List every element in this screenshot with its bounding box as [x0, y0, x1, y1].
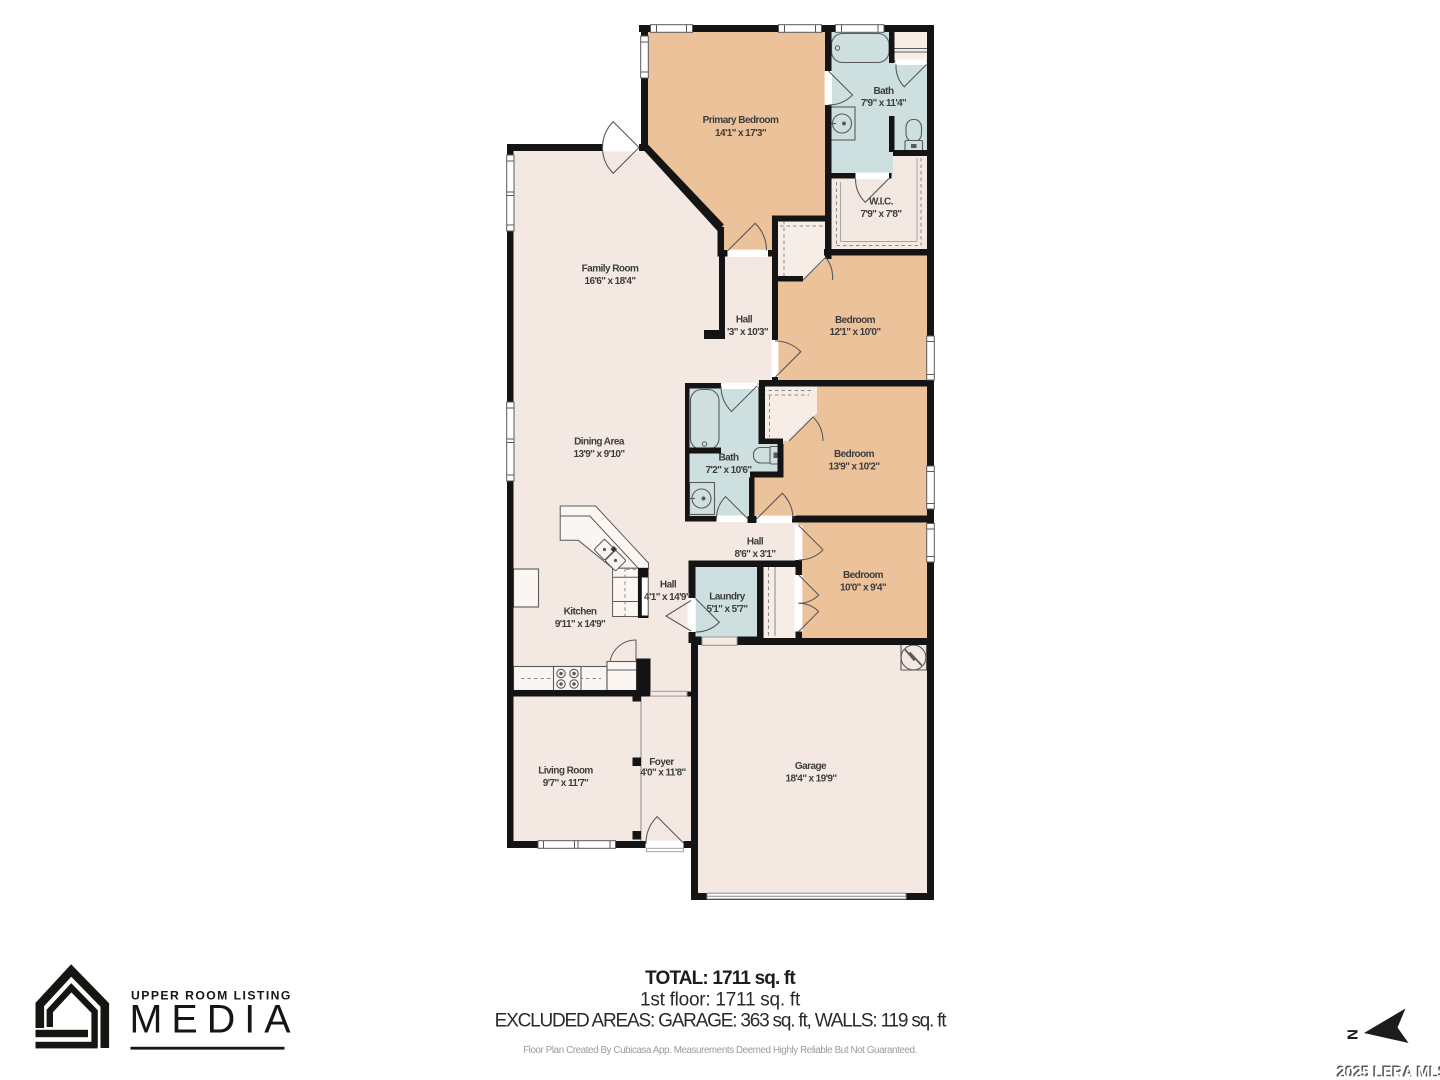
svg-text:'3" x 10'3": '3" x 10'3": [727, 327, 769, 338]
svg-text:7'2" x 10'6": 7'2" x 10'6": [706, 465, 753, 476]
svg-text:Hall: Hall: [747, 537, 764, 548]
svg-text:EXCLUDED AREAS: GARAGE: 363 sq: EXCLUDED AREAS: GARAGE: 363 sq. ft, WALL…: [495, 1011, 948, 1032]
svg-text:Foyer: Foyer: [649, 757, 674, 768]
svg-text:12'1" x 10'0": 12'1" x 10'0": [830, 327, 882, 338]
svg-text:4'0" x 11'8": 4'0" x 11'8": [640, 768, 686, 779]
svg-text:10'0" x 9'4": 10'0" x 9'4": [840, 583, 887, 594]
svg-text:9'11" x 14'9": 9'11" x 14'9": [555, 619, 606, 630]
svg-text:16'6" x 18'4": 16'6" x 18'4": [585, 276, 637, 287]
svg-text:7'9" x 11'4": 7'9" x 11'4": [861, 98, 907, 109]
svg-text:Family Room: Family Room: [582, 264, 639, 275]
svg-text:Hall: Hall: [660, 580, 677, 591]
svg-text:14'1" x 17'3": 14'1" x 17'3": [715, 128, 767, 139]
svg-text:7'9" x 7'8": 7'9" x 7'8": [860, 209, 902, 220]
svg-text:9'7" x 11'7": 9'7" x 11'7": [543, 778, 589, 789]
svg-text:Bedroom: Bedroom: [834, 449, 875, 460]
svg-text:13'9" x 9'10": 13'9" x 9'10": [574, 449, 626, 460]
svg-text:Hall: Hall: [736, 315, 753, 326]
svg-text:Laundry: Laundry: [709, 592, 746, 603]
svg-text:Bath: Bath: [718, 453, 738, 464]
svg-text:Dining Area: Dining Area: [574, 437, 625, 448]
svg-text:18'4" x 19'9": 18'4" x 19'9": [786, 774, 838, 785]
svg-text:2025 LERA MLS: 2025 LERA MLS: [1338, 1065, 1440, 1080]
svg-text:MEDIA: MEDIA: [130, 998, 300, 1042]
svg-text:8'6" x 3'1": 8'6" x 3'1": [734, 549, 776, 560]
svg-text:Living Room: Living Room: [538, 766, 593, 777]
svg-text:N: N: [1344, 1029, 1361, 1040]
svg-text:5'1" x 5'7": 5'1" x 5'7": [706, 604, 748, 615]
svg-text:1st floor: 1711 sq. ft: 1st floor: 1711 sq. ft: [640, 990, 801, 1011]
svg-text:Primary Bedroom: Primary Bedroom: [703, 115, 779, 126]
svg-text:13'9" x 10'2": 13'9" x 10'2": [829, 462, 881, 473]
svg-text:Floor Plan Created By Cubicasa: Floor Plan Created By Cubicasa App. Meas…: [523, 1045, 917, 1056]
svg-text:Bath: Bath: [873, 86, 893, 97]
svg-text:Kitchen: Kitchen: [564, 607, 597, 618]
svg-text:Bedroom: Bedroom: [835, 315, 876, 326]
svg-text:Garage: Garage: [795, 761, 827, 772]
svg-text:Bedroom: Bedroom: [843, 570, 884, 581]
svg-text:4'1" x 14'9": 4'1" x 14'9": [644, 592, 691, 603]
svg-text:W.I.C.: W.I.C.: [869, 197, 894, 208]
svg-text:TOTAL: 1711 sq. ft: TOTAL: 1711 sq. ft: [645, 968, 796, 989]
